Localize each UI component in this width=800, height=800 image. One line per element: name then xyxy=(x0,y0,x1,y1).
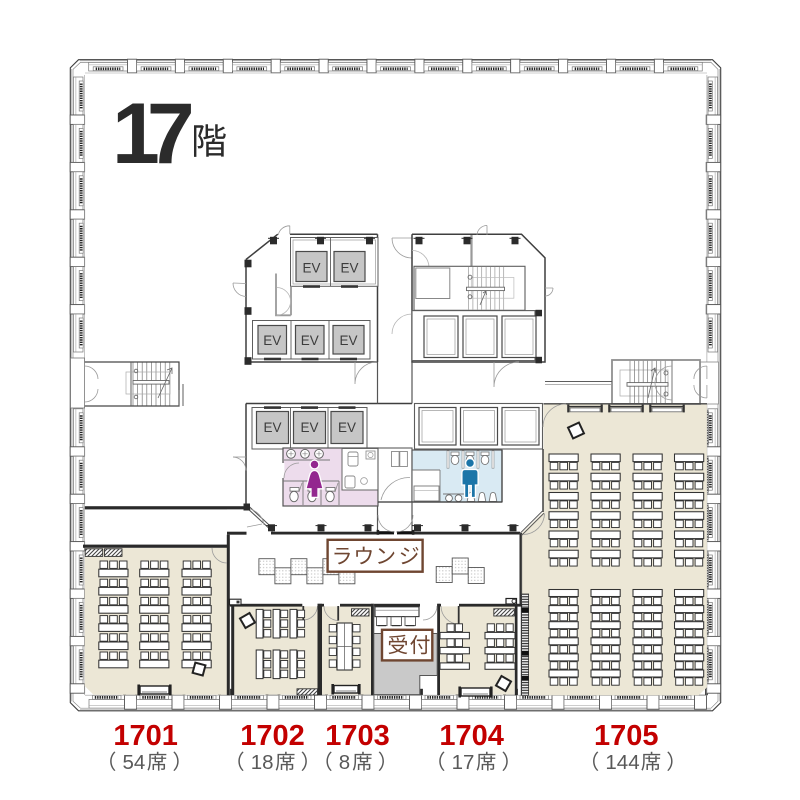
svg-text:8: 8 xyxy=(339,751,350,774)
svg-text:18: 18 xyxy=(251,751,274,774)
svg-text:1701: 1701 xyxy=(113,720,178,752)
svg-text:EV: EV xyxy=(302,261,320,276)
svg-text:1702: 1702 xyxy=(240,720,305,752)
svg-text:1703: 1703 xyxy=(325,720,390,752)
svg-text:1705: 1705 xyxy=(594,720,659,752)
svg-text:17: 17 xyxy=(452,751,475,774)
svg-text:54: 54 xyxy=(123,751,146,774)
svg-text:1704: 1704 xyxy=(439,720,504,752)
svg-text:EV: EV xyxy=(263,333,281,348)
svg-text:EV: EV xyxy=(263,420,281,435)
svg-text:144: 144 xyxy=(605,751,639,774)
svg-text:EV: EV xyxy=(339,333,357,348)
svg-text:EV: EV xyxy=(340,261,358,276)
svg-text:EV: EV xyxy=(338,420,356,435)
svg-text:EV: EV xyxy=(300,420,318,435)
svg-text:EV: EV xyxy=(301,333,319,348)
svg-text:17: 17 xyxy=(112,86,192,182)
